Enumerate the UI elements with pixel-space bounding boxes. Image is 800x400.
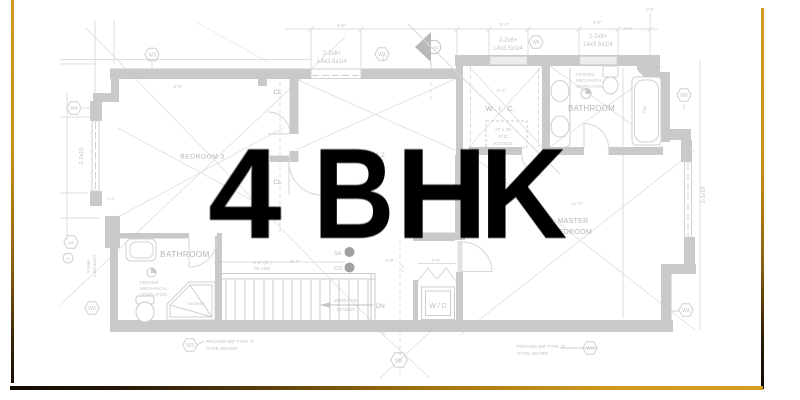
svg-text:13T@10": 13T@10" bbox=[337, 307, 356, 312]
svg-text:BATHROOM: BATHROOM bbox=[160, 250, 210, 259]
svg-text:ISLAND: ISLAND bbox=[254, 266, 271, 271]
svg-text:MECHANICAL: MECHANICAL bbox=[140, 286, 168, 291]
svg-text:2-2x10: 2-2x10 bbox=[701, 187, 707, 204]
svg-text:2-2x8+: 2-2x8+ bbox=[589, 34, 608, 40]
svg-text:5'-4": 5'-4" bbox=[291, 259, 300, 264]
svg-text:W2: W2 bbox=[88, 306, 96, 312]
svg-text:CO: CO bbox=[334, 266, 343, 272]
svg-text:W1: W1 bbox=[395, 358, 403, 364]
svg-text:PROVIDE 5/8" TYPE 'X': PROVIDE 5/8" TYPE 'X' bbox=[517, 344, 565, 349]
svg-text:PROVIDE: PROVIDE bbox=[576, 72, 595, 77]
svg-text:SHOWER: SHOWER bbox=[187, 301, 205, 306]
svg-text:14R@7 7/8": 14R@7 7/8" bbox=[334, 298, 359, 303]
svg-text:4'-6": 4'-6" bbox=[337, 23, 346, 28]
svg-text:W3: W3 bbox=[186, 343, 194, 349]
svg-text:TUB: TUB bbox=[642, 106, 647, 114]
svg-text:CL.: CL. bbox=[273, 90, 283, 96]
svg-text:1'-4": 1'-4" bbox=[107, 196, 116, 201]
svg-text:GYPS. BOARD: GYPS. BOARD bbox=[206, 346, 238, 351]
svg-text:L4x3.5x1/4: L4x3.5x1/4 bbox=[583, 42, 613, 48]
svg-text:L4x3.5x1/4: L4x3.5x1/4 bbox=[493, 46, 523, 52]
svg-text:5'-4": 5'-4" bbox=[500, 22, 509, 27]
svg-text:2-2x6+: 2-2x6+ bbox=[86, 259, 91, 273]
svg-text:4'-4": 4'-4" bbox=[497, 88, 506, 93]
svg-text:PROVIDE 5/8" TYPE 'X': PROVIDE 5/8" TYPE 'X' bbox=[206, 339, 254, 344]
svg-text:2x6: 2x6 bbox=[68, 240, 75, 245]
svg-text:BD: BD bbox=[433, 45, 439, 50]
svg-text:2-2x10: 2-2x10 bbox=[79, 148, 85, 165]
svg-text:W3: W3 bbox=[148, 53, 156, 59]
svg-text:2-2x8+: 2-2x8+ bbox=[499, 38, 518, 44]
svg-text:PROVIDE: PROVIDE bbox=[140, 280, 159, 285]
svg-text:11'-6": 11'-6" bbox=[571, 201, 583, 206]
svg-text:W / D: W / D bbox=[429, 303, 447, 310]
svg-text:VENTILATION: VENTILATION bbox=[140, 292, 167, 297]
svg-text:2-2x8+: 2-2x8+ bbox=[323, 51, 342, 57]
svg-text:W3: W3 bbox=[378, 52, 386, 58]
svg-text:9'-6": 9'-6" bbox=[174, 84, 183, 89]
svg-text:VENTILATION: VENTILATION bbox=[576, 84, 603, 89]
svg-text:DN: DN bbox=[376, 304, 385, 310]
svg-text:4'-6": 4'-6" bbox=[593, 20, 602, 25]
svg-text:W3: W3 bbox=[586, 346, 594, 352]
svg-text:W6: W6 bbox=[680, 93, 688, 99]
svg-text:W4: W4 bbox=[70, 106, 78, 112]
svg-text:1'-6": 1'-6" bbox=[646, 7, 655, 12]
svg-text:BATHROOM: BATHROOM bbox=[568, 104, 615, 113]
svg-text:GYPS. BOARD: GYPS. BOARD bbox=[517, 351, 549, 356]
svg-text:A: A bbox=[66, 256, 69, 261]
svg-text:W3: W3 bbox=[682, 308, 690, 314]
svg-text:MECHANICAL: MECHANICAL bbox=[576, 78, 604, 83]
svg-text:4'-0": 4'-0" bbox=[624, 26, 633, 31]
svg-text:W. I. C.: W. I. C. bbox=[486, 104, 517, 113]
svg-text:W5: W5 bbox=[532, 40, 540, 46]
svg-text:L4x3.5x1/4: L4x3.5x1/4 bbox=[92, 255, 97, 278]
svg-text:L4x3.5x1/4: L4x3.5x1/4 bbox=[317, 59, 347, 65]
